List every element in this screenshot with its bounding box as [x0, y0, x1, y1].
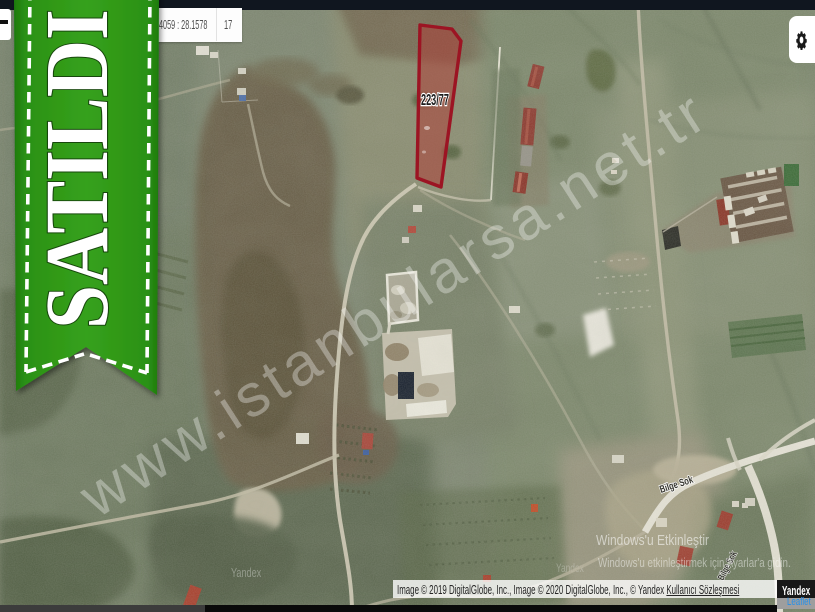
- svg-text:Yandex: Yandex: [231, 567, 261, 581]
- svg-text:SATILDI: SATILDI: [27, 9, 127, 329]
- svg-text:223/77: 223/77: [421, 90, 449, 108]
